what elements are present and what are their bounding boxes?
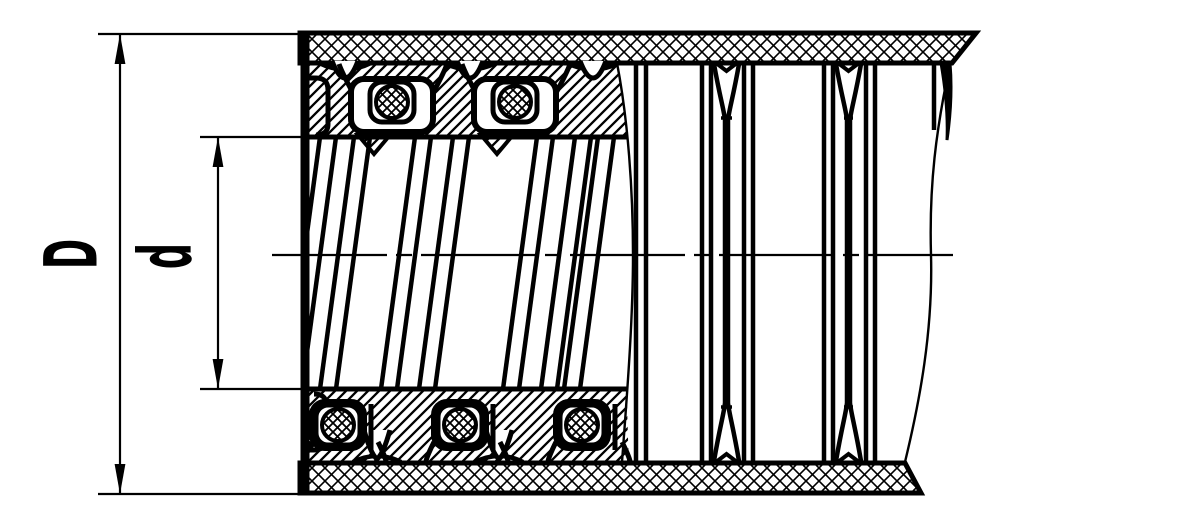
- sealing-gasket: [566, 409, 598, 441]
- sealing-gasket: [499, 86, 531, 118]
- hose-section-drawing: D d: [0, 0, 1200, 525]
- sealing-gasket: [322, 409, 354, 441]
- technical-drawing-canvas: D d: [0, 0, 1200, 525]
- outer-braid-band-top: [300, 33, 976, 63]
- sealing-gasket: [444, 409, 476, 441]
- sealing-gasket: [376, 86, 408, 118]
- inner-diameter-label: d: [122, 243, 208, 269]
- outer-braid-band-bottom: [300, 463, 921, 493]
- outer-diameter-label: D: [28, 239, 114, 269]
- packing-layer-bottom: [301, 389, 630, 462]
